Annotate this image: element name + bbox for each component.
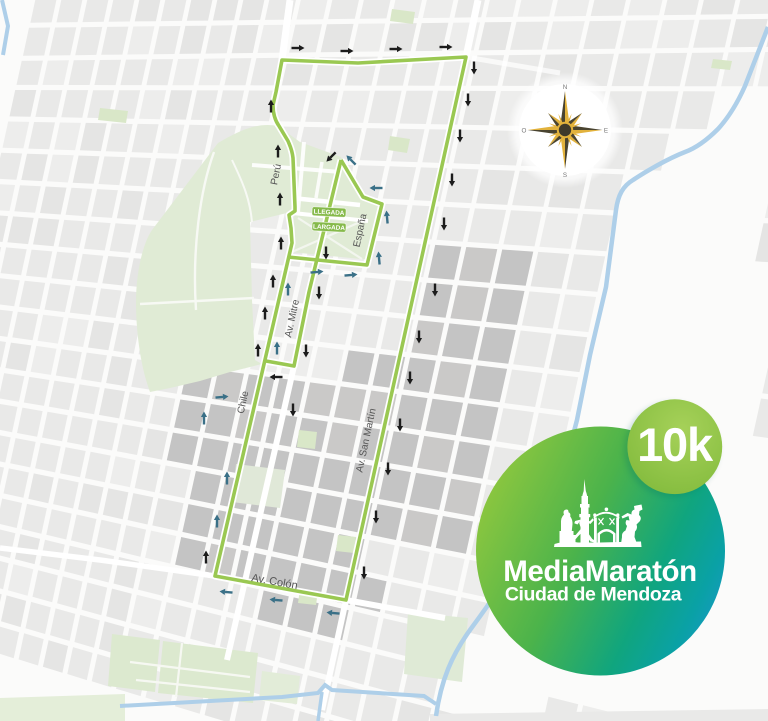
svg-text:S: S: [563, 172, 567, 179]
svg-text:Ciudad de Mendoza: Ciudad de Mendoza: [505, 584, 682, 606]
svg-text:E: E: [604, 128, 608, 135]
svg-text:N: N: [563, 84, 568, 91]
svg-text:10k: 10k: [637, 418, 714, 471]
svg-text:O: O: [522, 128, 527, 135]
